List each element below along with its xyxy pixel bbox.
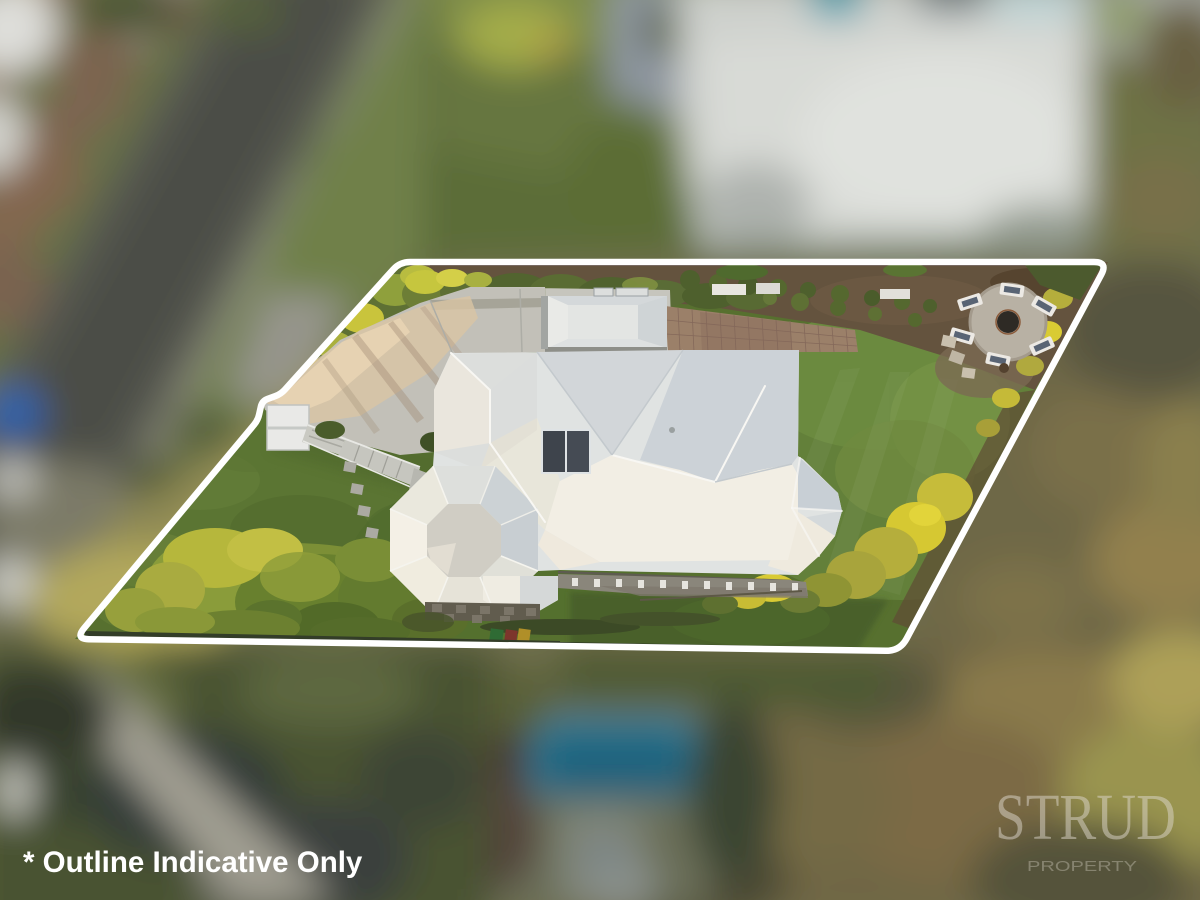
svg-text:PROPERTY: PROPERTY xyxy=(1027,858,1137,875)
svg-text:STRUD: STRUD xyxy=(995,781,1176,854)
